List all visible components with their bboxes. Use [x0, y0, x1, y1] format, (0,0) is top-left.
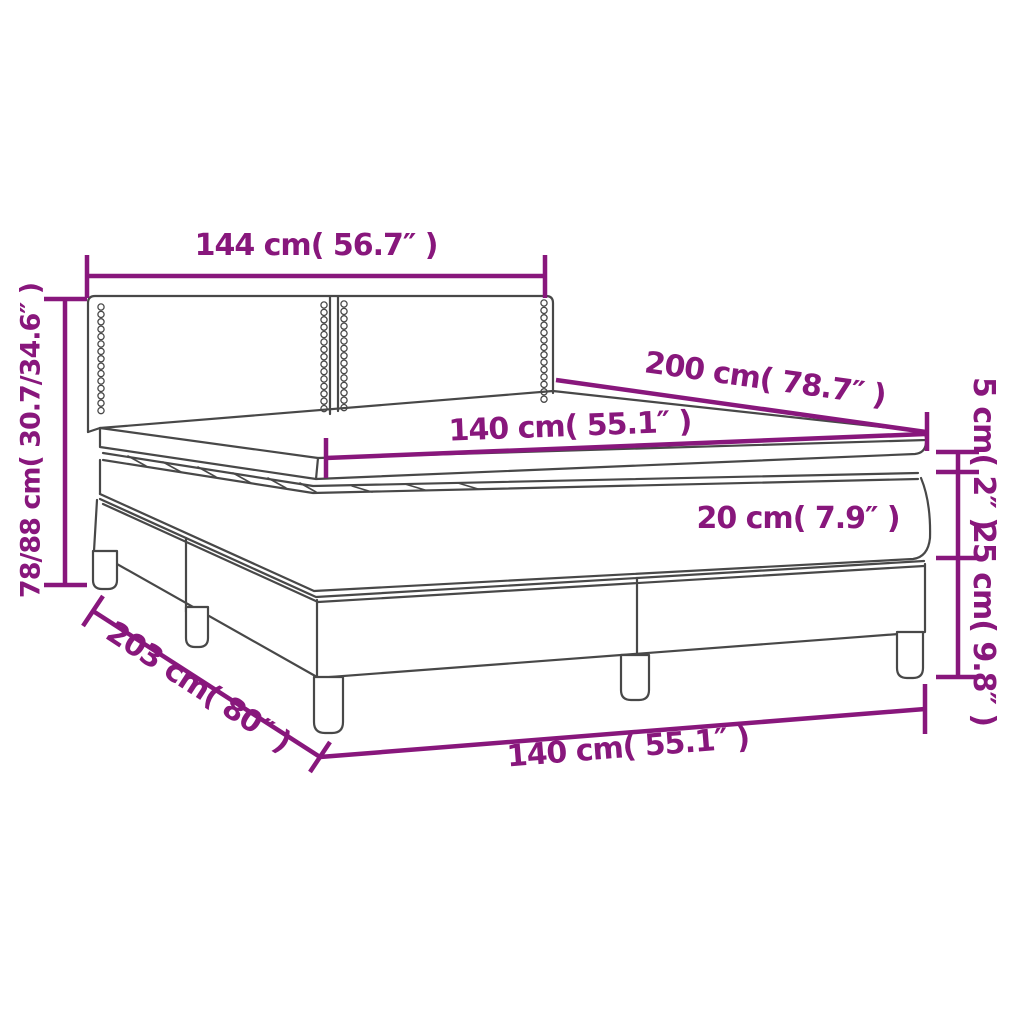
dim-label-topper-height: 5 cm( 2″ ) — [968, 377, 998, 527]
headboard-bottom-edge — [88, 428, 100, 432]
bed-leg-front-corner — [314, 677, 343, 733]
bed-leg-back-left — [93, 551, 117, 589]
dim-label-mattress-height: 20 cm( 7.9″ ) — [680, 504, 916, 534]
dim-label-overall-height: 78/88 cm( 30.7/34.6″ ) — [18, 276, 45, 606]
bed-leg-front-right — [897, 632, 923, 678]
bed-leg-front-middle — [621, 655, 649, 700]
dim-label-headboard-width: 144 cm( 56.7″ ) — [86, 231, 546, 261]
bed-leg-mid-left — [186, 607, 208, 647]
dim-line-overall-height — [44, 299, 87, 585]
dimension-diagram: 144 cm( 56.7″ ) 200 cm( 78.7″ ) 140 cm( … — [0, 0, 1024, 1024]
dim-label-base-height: 25 cm( 9.8″ ) — [968, 523, 998, 713]
